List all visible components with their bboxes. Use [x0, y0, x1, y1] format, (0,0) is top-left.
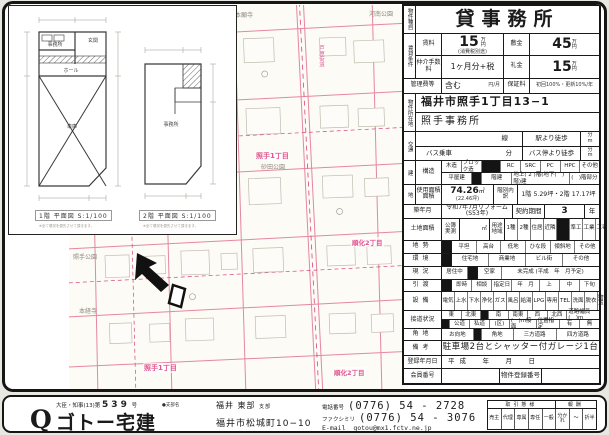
land-area-label: 土地面積 [404, 219, 442, 240]
floorplan-inset: 事務所 玄関 ホール 車庫 事務所 1階 平面図 S:1/100 2階 平面図 … [8, 5, 237, 235]
map-label-honkyoji: 本経寺 [79, 309, 97, 316]
deal-header-right: 報酬 [556, 401, 596, 408]
row-env: 環境 住宅地 商業地 ビル街 その他 [404, 254, 599, 267]
address-label: 物件所在地 [404, 94, 416, 132]
row-kadochi: 角地 お向地 角地 三方道路 四方道路 [404, 329, 599, 341]
deposit-label: 敷金 [504, 34, 530, 55]
contract-label: 契約期間 [513, 205, 545, 218]
chisei-label: 地勢 [404, 241, 442, 253]
agency-logo-icon: Q [30, 405, 52, 433]
row-access: 交通 線 駅より徒歩 分m バス乗車分 バス停より徒歩 分m [404, 132, 599, 161]
row-registration: 登録年月日 平成 年 月 日 [404, 356, 599, 369]
row-land-youto: 土地面積 公簿実測 ㎡ 用途地域 1種 2種 住居 近隣 商業 準工 工業 工専… [404, 219, 599, 241]
fee-value: 1ヶ月分+税 [442, 56, 504, 77]
floorplan-caption-1f: 1階 平面図 S:1/100 [35, 210, 112, 221]
rent-note: (消費税別途) [458, 50, 487, 56]
row-member: 会員番号 物件登録番号 [404, 369, 599, 383]
row-built: 築年月 令和7年7月リフォーム(S53年) 契約期間 3 年 [404, 205, 599, 219]
built-label: 築年月 [404, 205, 442, 218]
key-money-value: 15 [552, 59, 571, 75]
floor-breakdown-value: 1階 5.29坪・2階 17.17坪 [518, 185, 599, 204]
row-setsudo: 接道状況 東 北東 南 南東 西 北西 道路幅員( )m 公道 私道 (区) [404, 311, 599, 329]
rent-label: 賃料 [416, 34, 442, 55]
member-label: 会員番号 [404, 369, 442, 383]
branch-bullet-label: ●支部名 [162, 402, 179, 408]
area-tsubo: (22.46坪) [456, 197, 479, 203]
floorplan-note-1: ※全て現況を優先させて頂きます。 [39, 224, 94, 229]
kadochi-label: 角地 [404, 329, 442, 340]
room-label-office1: 事務所 [47, 41, 62, 48]
rent-group-label: 賃貸条件 [404, 34, 416, 78]
email-address: E-mail gotou@mx1.fctv.ne.jp [322, 424, 432, 432]
property-reg-label: 物件登録番号 [500, 369, 542, 383]
hikiwatashi-label: 引渡 [404, 280, 442, 292]
map-label-terute1-bottom: 照手1丁目 [143, 363, 178, 373]
address-line2: 照手事務所 [416, 113, 599, 131]
setsubi-label: 設備 [404, 292, 442, 310]
structure-label: 構造 [416, 161, 442, 184]
fee-label: 仲介手数料 [416, 56, 442, 77]
floorplan-caption-2f: 2階 平面図 S:1/100 [139, 210, 216, 221]
contract-value: 3 [545, 205, 585, 218]
map-label-junka-right: 順化2丁目 [351, 237, 384, 247]
floorplan-note-2: ※全て現況を優先させて頂きます。 [143, 224, 198, 229]
branch-name: 福井 東部 支部 [216, 400, 271, 411]
guarantee-value: 初回100%・更新10%/年 [530, 79, 599, 93]
map-label-junka-bottom: 順化2丁目 [333, 367, 366, 377]
mgmt-label: 管理費等 [404, 79, 442, 93]
address-line1: 福井市照手1丁目13−1 [416, 94, 599, 112]
map-label-terute1-mid: 照手1丁目 [255, 151, 290, 161]
area-value: 74.26 [450, 186, 478, 196]
row-structure: 建 構造 木造 ブロック造 鉄骨造 RC SRC PC HPC その他 平屋建 … [404, 161, 599, 185]
agency-logo-text: ゴトー宅建 [56, 408, 156, 433]
property-type-label: 物件種目 [404, 6, 416, 33]
agency-address: 福井市松城町10−10 [216, 416, 311, 429]
genkyo-label: 現況 [404, 267, 442, 279]
rent-value: 15 [459, 34, 478, 50]
agency-footer: 大臣・知事(13)第 539 号 Q ゴトー宅建 ●支部名 福井 東部 支部 福… [2, 395, 607, 433]
access-label: 交通 [404, 132, 416, 160]
setsudo-label: 接道状況 [404, 311, 442, 328]
fax-number: ファクシミリ(0776) 54 - 3076 [322, 412, 476, 424]
map-label-road-awara: 芦原街道 [317, 45, 325, 67]
phone-number: 電話番号(0776) 54 - 2728 [322, 400, 465, 412]
row-genkyo: 現況 居住中 空家 未完成 (平成 年 月予定) [404, 267, 599, 280]
youto-label: 用途地域 [490, 219, 505, 240]
biko-value: 駐車場2台とシャッター付ガレージ1台 [442, 341, 599, 355]
reg-value: 平成 年 月 日 [442, 356, 599, 368]
built-value: 令和7年7月リフォーム(S53年) [442, 205, 513, 218]
key-money-label: 礼金 [504, 56, 530, 77]
deposit-value: 45 [552, 36, 571, 52]
guarantee-label: 保証料 [504, 79, 530, 93]
reg-label: 登録年月日 [404, 356, 442, 368]
row-rent-group: 賃貸条件 賃料 15 万円 (消費税別途) 敷金 45 万円 仲介手数料 1ヶ月… [404, 34, 599, 79]
map-label-park-terute: 照手公園 [73, 255, 97, 262]
row-area: 地 使用面積面積 74.26㎡ (22.46坪) 階別内訳 1階 5.29坪・2… [404, 185, 599, 205]
listing-sheet: 本願寺 河南公園 芦原街道 照手1丁目 砂田公園 順化2丁目 照手公園 本経寺 … [2, 1, 607, 392]
row-title: 物件種目 貸事務所 [404, 6, 599, 34]
row-address: 物件所在地 福井市照手1丁目13−1 照手事務所 [404, 94, 599, 133]
env-label: 環境 [404, 254, 442, 266]
mgmt-value: 含む [445, 81, 461, 90]
page-title: 貸事務所 [416, 6, 599, 33]
floor-breakdown-label: 階別内訳 [494, 185, 518, 204]
room-label-office2: 事務所 [163, 121, 178, 128]
deal-header-left: 取引態様 [488, 401, 556, 408]
deal-type-table: 取引態様 報酬 売主 代理 専属 専任 一般 分かれ 〜 折半 [487, 400, 597, 430]
map-label-park-kanan: 河南公園 [369, 12, 393, 19]
map-label-park-sunada: 砂田公園 [261, 165, 285, 172]
row-chisei: 地勢 平坦 高台 低地 ひな段 傾斜地 その他 [404, 241, 599, 254]
room-label-garage: 車庫 [67, 123, 77, 130]
room-label-entrance: 玄関 [88, 37, 98, 44]
row-management: 管理費等 含む 円/月 保証料 初回100%・更新10%/年 [404, 79, 599, 94]
land-col-label: 地 [404, 185, 416, 204]
property-table: 物件種目 貸事務所 賃貸条件 賃料 15 万円 (消費税別途) 敷金 45 万円 [402, 4, 601, 385]
room-label-hall: ホール [63, 68, 78, 74]
building-label: 建 [404, 161, 416, 184]
floorplan-drawing: 事務所 玄関 ホール 車庫 事務所 [9, 6, 235, 233]
row-hikiwatashi: 引渡 即時 相談 指定日 年 月 上 中 下旬 [404, 280, 599, 293]
biko-label: 備考 [404, 341, 442, 355]
map-label-temple: 本願寺 [235, 13, 253, 20]
row-biko: 備考 駐車場2台とシャッター付ガレージ1台 [404, 341, 599, 356]
